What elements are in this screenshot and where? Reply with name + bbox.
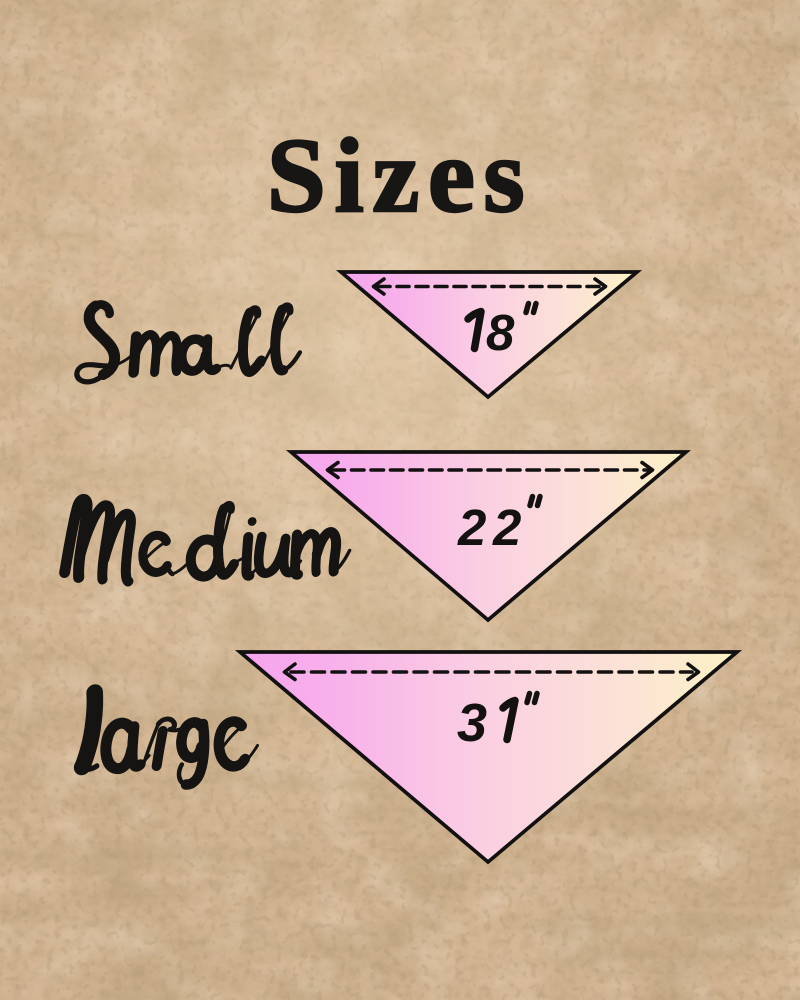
svg-text:2: 2 — [492, 499, 521, 556]
svg-text:3: 3 — [457, 693, 487, 753]
svg-text:8: 8 — [486, 304, 515, 361]
svg-text:Sizes: Sizes — [267, 117, 533, 234]
svg-text:2: 2 — [457, 499, 486, 556]
